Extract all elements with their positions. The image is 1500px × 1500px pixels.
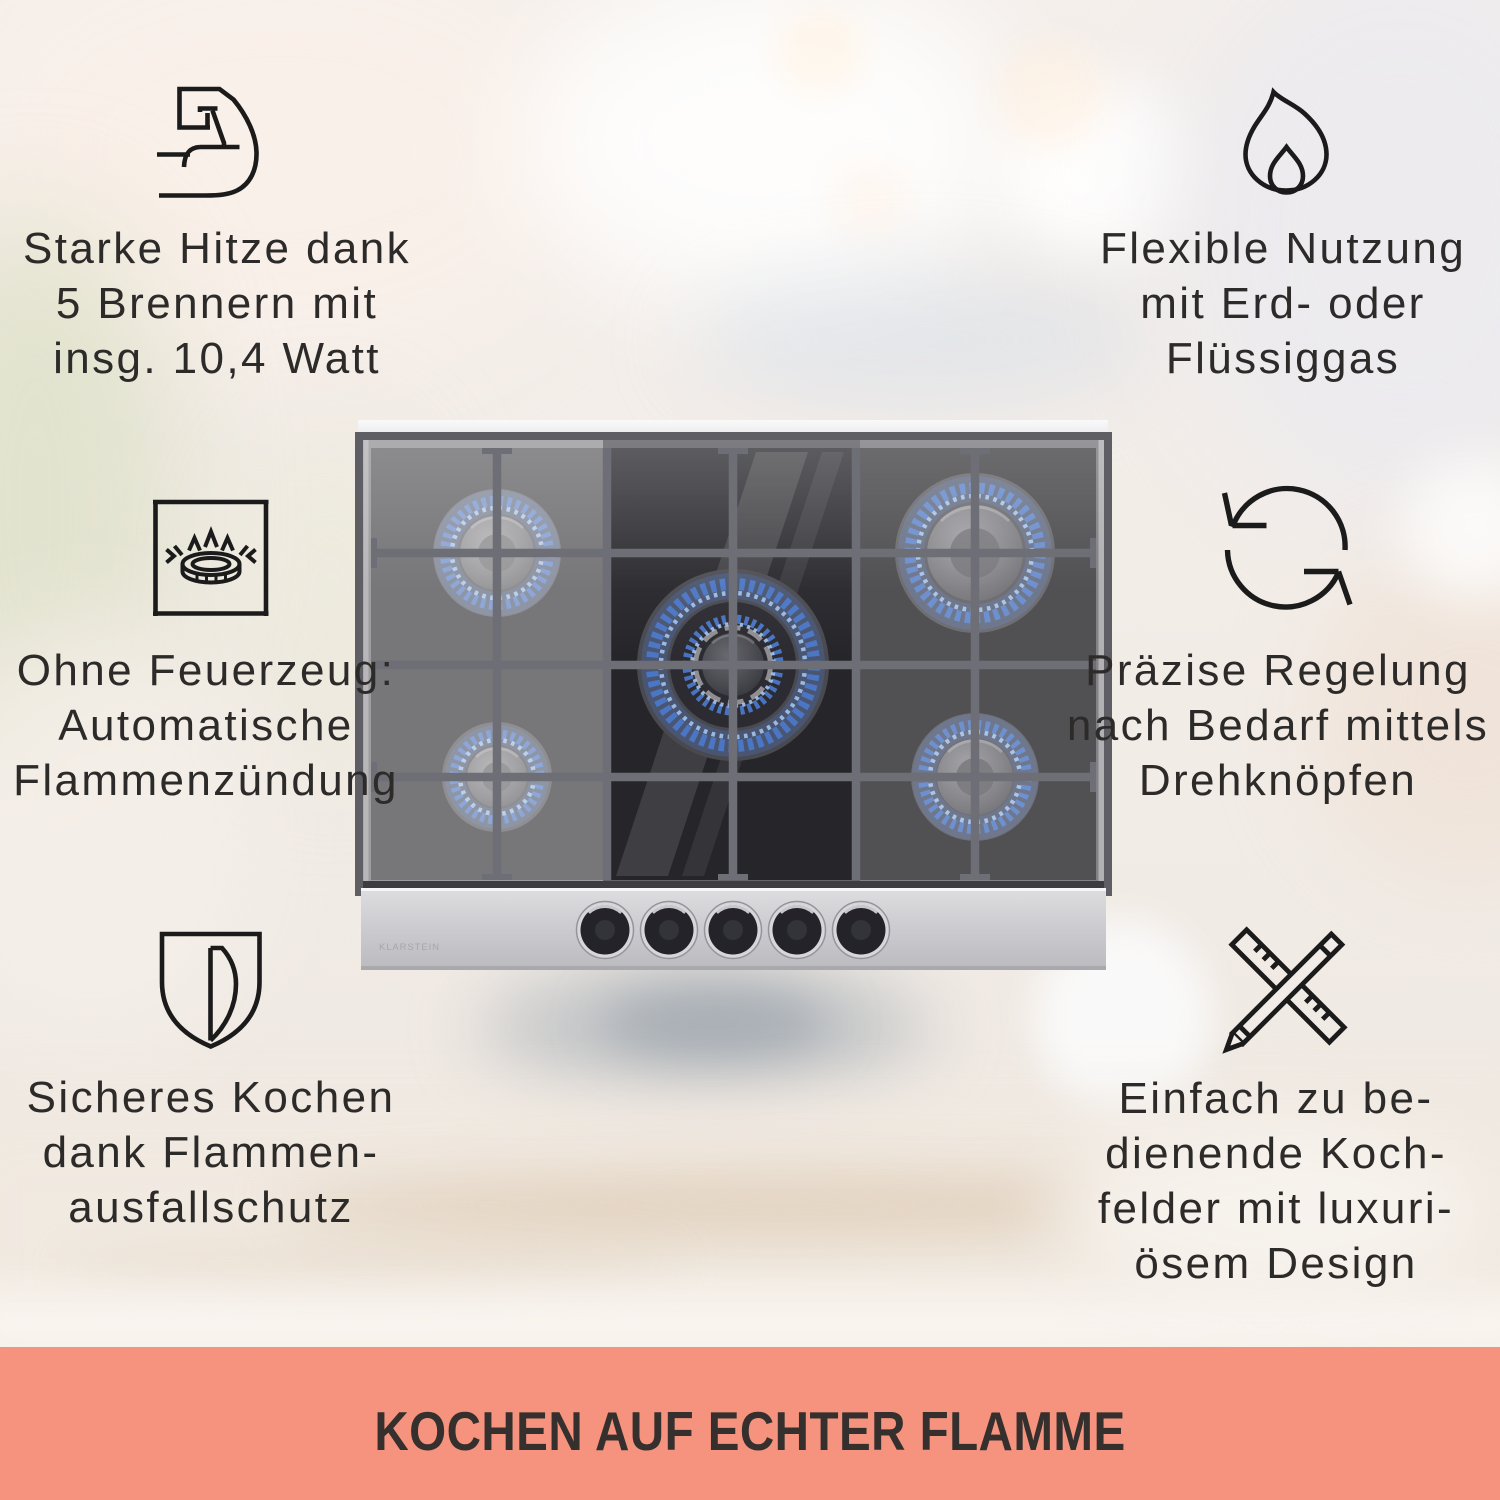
svg-text:KLARSTEIN: KLARSTEIN (379, 942, 440, 953)
